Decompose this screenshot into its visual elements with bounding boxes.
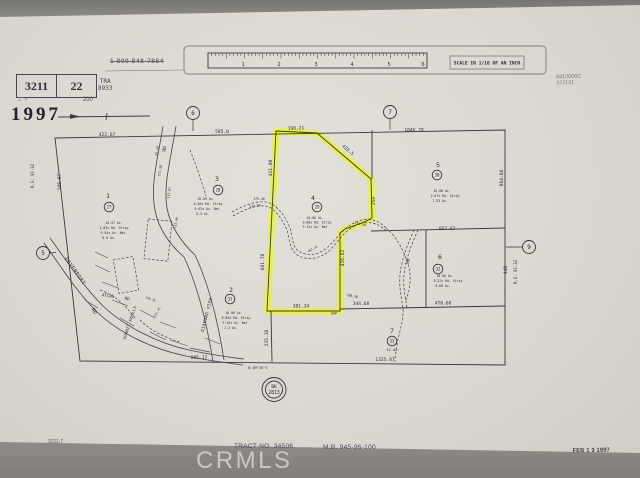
scale-caption: SCALE IN 1/10 OF AN INCH bbox=[454, 61, 521, 67]
dimension-label: 45.10 bbox=[154, 146, 160, 156]
dimension-label: 179.46 bbox=[253, 197, 265, 201]
dimension-label: 478.68 bbox=[435, 301, 452, 307]
dimension-label: 108.67 bbox=[57, 173, 63, 190]
dimension-label: 130.35 bbox=[145, 295, 157, 303]
section-number-circle-number: 6 bbox=[191, 110, 195, 117]
dimension-label: 667.67 bbox=[439, 226, 456, 232]
acreage-note: 9.20± Ac. Net bbox=[223, 321, 248, 325]
tra-block: TRA 8933 bbox=[98, 79, 112, 92]
parcel-apn-circle-number: 32 bbox=[436, 266, 441, 271]
year-label: 1997 bbox=[11, 104, 61, 126]
parcel-number: 2 bbox=[229, 286, 233, 294]
acreage-note: 10.57 Ac. bbox=[105, 221, 122, 225]
parcel-number: 6 bbox=[438, 253, 442, 261]
acreage-note: 9.68 Ac. bbox=[435, 284, 450, 288]
bk-circle-line1: BK bbox=[271, 384, 277, 390]
parcel-number: 1 bbox=[106, 192, 110, 200]
dimension-label: 213.75 bbox=[153, 307, 162, 319]
acreage-note: 10.00 Ac. bbox=[433, 189, 450, 193]
paper-band-line bbox=[105, 70, 184, 71]
dimension-label: 133.87 bbox=[166, 187, 172, 199]
acreage-note: 9.63± Ac. Net bbox=[195, 207, 220, 211]
tra-value: 8933 bbox=[98, 86, 112, 93]
survey-ref: R.S. 91-32 bbox=[513, 259, 518, 284]
road-name: DAVENPORT bbox=[63, 256, 87, 286]
acreage-note: 7.33 Ac. bbox=[432, 199, 447, 203]
dimension-label: 162.45 bbox=[307, 245, 319, 254]
handwritten-line2: 371131 bbox=[556, 80, 582, 87]
scale-note-row: 1" = 200' bbox=[18, 97, 94, 103]
sheet-reference: 3211-7 bbox=[48, 439, 63, 445]
acreage-note: 10.00 Ac. bbox=[306, 216, 323, 220]
map-book-page-box: 3211 22 bbox=[16, 74, 97, 98]
page-number: 22 bbox=[57, 75, 96, 97]
acreage-note: 2.2 Ac. bbox=[224, 326, 238, 330]
parcel-apn-circle-number: 30 bbox=[435, 172, 440, 177]
parcel-apn-circle-number: 31 bbox=[228, 296, 233, 301]
ruler-number: 3 bbox=[314, 62, 317, 68]
acreage-note: 10.03 Ac. bbox=[197, 197, 214, 201]
ruler-number: 5 bbox=[387, 62, 390, 68]
bearing-note: N 89°45'E bbox=[248, 366, 267, 370]
acreage-note: 0.40± Rd. Strip bbox=[194, 202, 223, 206]
scale-note-value: 200' bbox=[83, 97, 94, 103]
lot-line-scatter bbox=[85, 252, 220, 352]
dimension-label: 132.50 bbox=[249, 203, 261, 209]
dimension-label: 1046.79 bbox=[404, 128, 424, 134]
parcel-number: 5 bbox=[436, 161, 440, 169]
ruler-number: 4 bbox=[350, 62, 353, 68]
acreage-note: 0.32± Rd. Strip bbox=[434, 279, 463, 283]
dimension-label: 344.68 bbox=[353, 301, 370, 307]
road-name: RD bbox=[90, 307, 98, 315]
dimension-label: 131.38 bbox=[157, 165, 163, 177]
parcel-number: 7 bbox=[390, 327, 394, 335]
dimension-label: 585.0 bbox=[215, 129, 229, 135]
dimension-label: 864.68 bbox=[499, 169, 505, 186]
road-name: LN bbox=[404, 258, 411, 265]
ruler-number: 6 bbox=[421, 62, 424, 68]
ruler-number: 2 bbox=[277, 62, 280, 68]
road-name: RD bbox=[162, 146, 168, 152]
dimension-label: 885.17 bbox=[191, 355, 208, 361]
bk-circle-line2: 2813 bbox=[268, 390, 280, 396]
parcel-apn-circle-number: 33 bbox=[390, 338, 395, 343]
crmls-watermark: CRMLS bbox=[196, 447, 293, 475]
book-number: 3211 bbox=[17, 75, 57, 97]
ruler-ticks bbox=[208, 53, 427, 59]
section-number-circle-number: 9 bbox=[527, 244, 531, 251]
map-labels: 123456SCALE IN 1/10 OF AN INCH422.67585.… bbox=[30, 61, 520, 397]
dimension-label: 1325.87 bbox=[375, 357, 395, 363]
parcel-apn-circle-number: 29 bbox=[315, 204, 320, 209]
acreage-note: 10.00 Ac. bbox=[436, 274, 453, 278]
scale-note-prefix: 1" = bbox=[18, 97, 28, 103]
road-name: ATLAS bbox=[102, 292, 116, 299]
road-name: RD bbox=[124, 296, 130, 302]
acreage-note: 10.98 Ac. bbox=[225, 311, 242, 315]
gap-note: GAP bbox=[331, 312, 338, 316]
acreage-note: 9.54± Ac. Net bbox=[101, 231, 126, 235]
solid-roads bbox=[44, 126, 244, 365]
dimension-label: 381.34 bbox=[293, 304, 310, 310]
acreage-note: 0.88± Rd. Strip bbox=[303, 221, 332, 225]
parcel2-7-divider bbox=[271, 311, 272, 362]
assessor-map-drawing: 675927282930313233 123456SCALE IN 1/10 O… bbox=[0, 0, 640, 478]
ruler-band-outline bbox=[184, 46, 546, 74]
acreage-note: 2.67± Rd. Strip bbox=[431, 194, 460, 198]
dimension-label: 250 bbox=[371, 197, 377, 206]
dimension-label: 132.40 bbox=[173, 217, 179, 229]
ruler-number: 1 bbox=[241, 62, 244, 68]
year-arrow bbox=[58, 113, 150, 120]
dimension-label: 298.38 bbox=[346, 293, 358, 299]
parcel-apn-circle-number: 27 bbox=[107, 204, 112, 209]
survey-ref: R.S. 91-32 bbox=[30, 163, 35, 188]
dimension-label: 235.18 bbox=[264, 329, 270, 346]
dimension-label: 456.62 bbox=[340, 249, 346, 266]
dimension-label: 198.21 bbox=[288, 125, 305, 132]
parcel-number: 3 bbox=[215, 175, 219, 183]
section-number-circle-number: 5 bbox=[41, 250, 45, 257]
dimension-label: 411.98 bbox=[268, 159, 274, 176]
scale-ruler bbox=[105, 46, 546, 74]
section-number-circle-number: 7 bbox=[388, 109, 392, 116]
dimension-label: 601.78 bbox=[260, 253, 266, 270]
acreage-note: 12 Ac. bbox=[387, 348, 400, 352]
parcel-number: 4 bbox=[311, 194, 315, 202]
handwritten-note: 8412000C 371131 bbox=[556, 74, 582, 87]
map-book-reference: M.B. 945-96-100 bbox=[323, 444, 376, 451]
acreage-note: 9.12± Ac. Net bbox=[303, 225, 328, 229]
date-stamp: FEB 1 3 1997 bbox=[573, 448, 610, 455]
struck-phone-number: 1 800 848-7884 bbox=[110, 58, 164, 65]
dimension-label: 448 bbox=[503, 266, 509, 275]
acreage-note: 0.80± Rd. Strip bbox=[222, 316, 251, 320]
scanned-parcel-map-photo: { "header": { "book": "3211", "page": "2… bbox=[0, 0, 640, 478]
acreage-note: 1.03± Rd. Strip bbox=[100, 226, 129, 230]
acreage-note: 8.3 Ac. bbox=[196, 212, 210, 216]
parcel-apn-circle-number: 28 bbox=[216, 187, 221, 192]
acreage-note: 8.9 Ac. bbox=[102, 236, 116, 240]
dimension-label: 422.67 bbox=[99, 132, 116, 138]
